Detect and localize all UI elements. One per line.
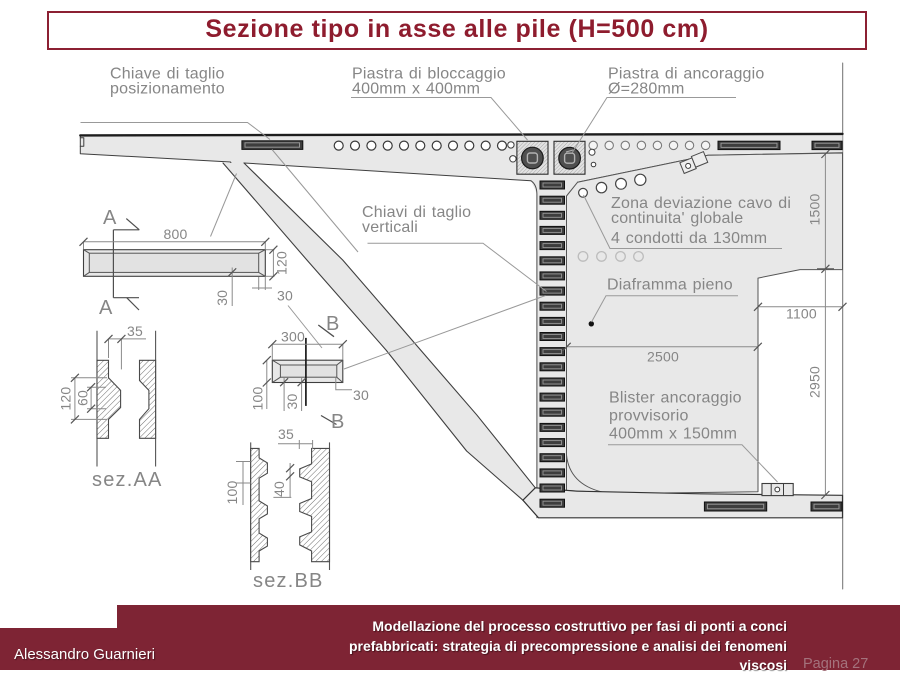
svg-text:2950: 2950 — [807, 366, 823, 398]
svg-text:4 condotti da 130mm: 4 condotti da 130mm — [611, 230, 767, 247]
svg-text:800: 800 — [164, 226, 188, 242]
svg-text:Blister ancoraggio: Blister ancoraggio — [609, 390, 742, 407]
svg-text:2500: 2500 — [647, 349, 679, 365]
svg-text:1500: 1500 — [807, 194, 823, 226]
svg-text:35: 35 — [278, 426, 294, 442]
svg-text:30: 30 — [284, 394, 300, 410]
svg-text:B: B — [331, 411, 345, 433]
svg-text:continuita' globale: continuita' globale — [611, 210, 743, 227]
svg-text:35: 35 — [127, 323, 143, 339]
svg-text:sez.AA: sez.AA — [92, 469, 163, 491]
svg-text:30: 30 — [214, 290, 230, 306]
svg-text:Ø=280mm: Ø=280mm — [608, 81, 685, 98]
svg-text:Diaframma pieno: Diaframma pieno — [607, 277, 733, 294]
svg-text:300: 300 — [281, 329, 305, 345]
svg-text:B: B — [326, 313, 340, 335]
svg-text:400mm x 400mm: 400mm x 400mm — [352, 81, 480, 98]
svg-text:400mm x 150mm: 400mm x 150mm — [609, 426, 737, 443]
svg-text:100: 100 — [250, 387, 266, 411]
svg-text:verticali: verticali — [362, 219, 418, 236]
svg-text:100: 100 — [224, 481, 240, 505]
svg-text:30: 30 — [277, 288, 293, 304]
svg-text:provvisorio: provvisorio — [609, 408, 689, 425]
svg-text:A: A — [99, 297, 113, 319]
svg-text:A: A — [103, 207, 117, 229]
svg-text:120: 120 — [58, 387, 74, 411]
svg-text:40: 40 — [271, 481, 287, 497]
svg-text:60: 60 — [75, 390, 91, 406]
svg-text:30: 30 — [353, 387, 369, 403]
svg-text:1100: 1100 — [786, 306, 817, 322]
svg-text:sez.BB: sez.BB — [253, 570, 324, 592]
svg-text:120: 120 — [274, 251, 290, 275]
svg-text:posizionamento: posizionamento — [110, 81, 225, 98]
